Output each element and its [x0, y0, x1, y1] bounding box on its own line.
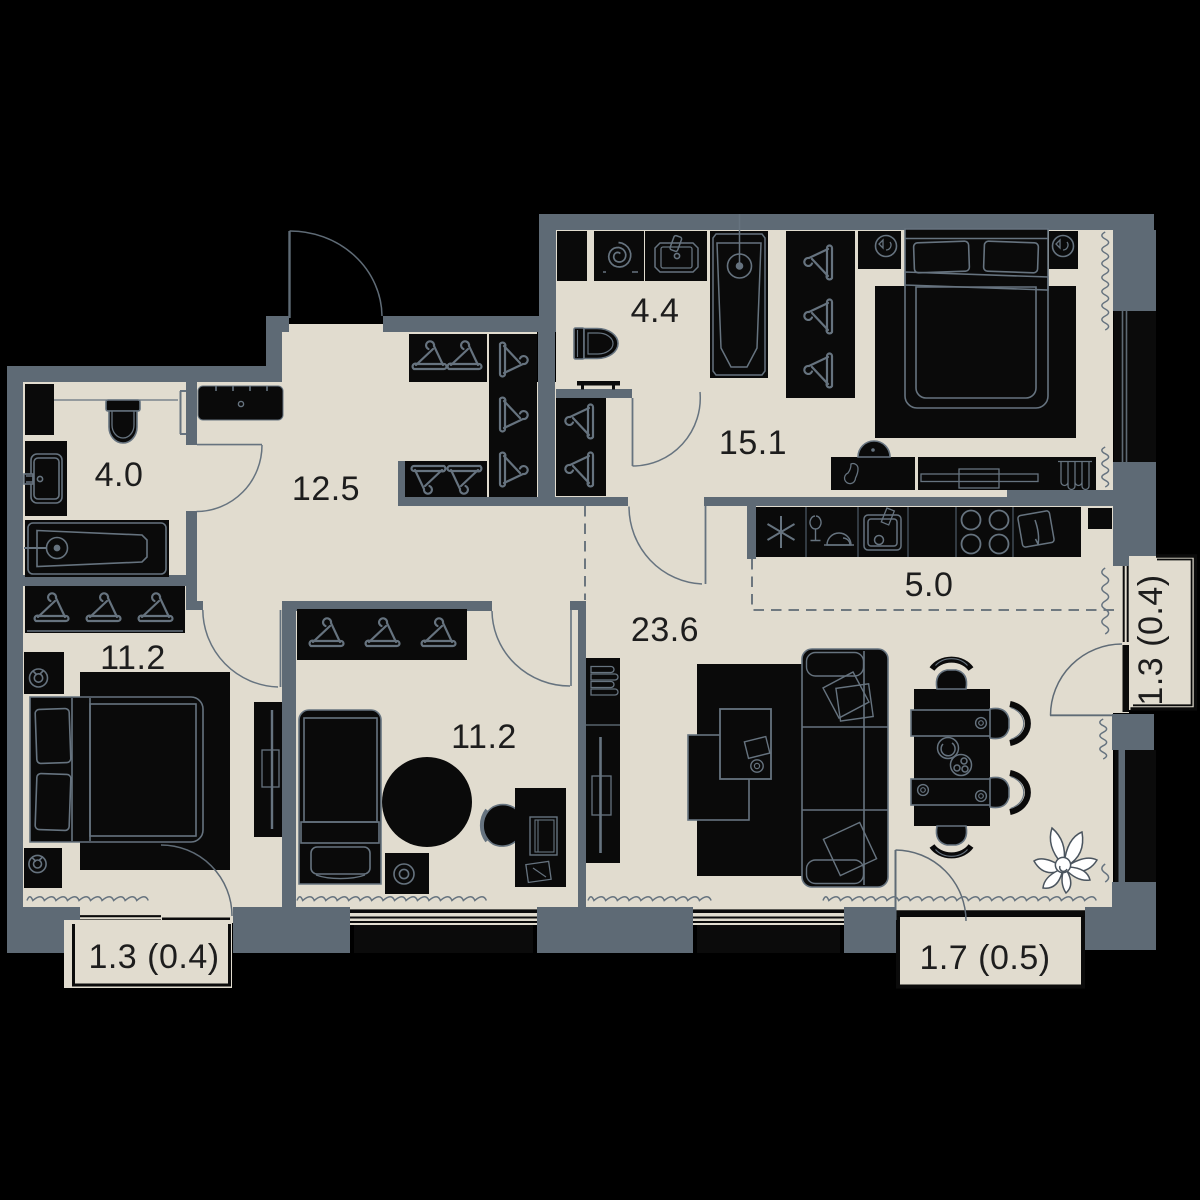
- svg-text:12.5: 12.5: [292, 470, 360, 508]
- svg-text:1.3 (0.4): 1.3 (0.4): [1132, 574, 1170, 705]
- svg-text:5.0: 5.0: [905, 566, 954, 604]
- svg-text:1.7 (0.5): 1.7 (0.5): [919, 939, 1050, 977]
- svg-text:11.2: 11.2: [100, 639, 166, 677]
- svg-text:23.6: 23.6: [631, 611, 699, 649]
- svg-text:11.2: 11.2: [451, 718, 517, 756]
- svg-text:4.0: 4.0: [95, 456, 144, 494]
- svg-text:1.3 (0.4): 1.3 (0.4): [88, 938, 219, 976]
- svg-text:15.1: 15.1: [719, 424, 787, 462]
- svg-text:4.4: 4.4: [631, 292, 680, 330]
